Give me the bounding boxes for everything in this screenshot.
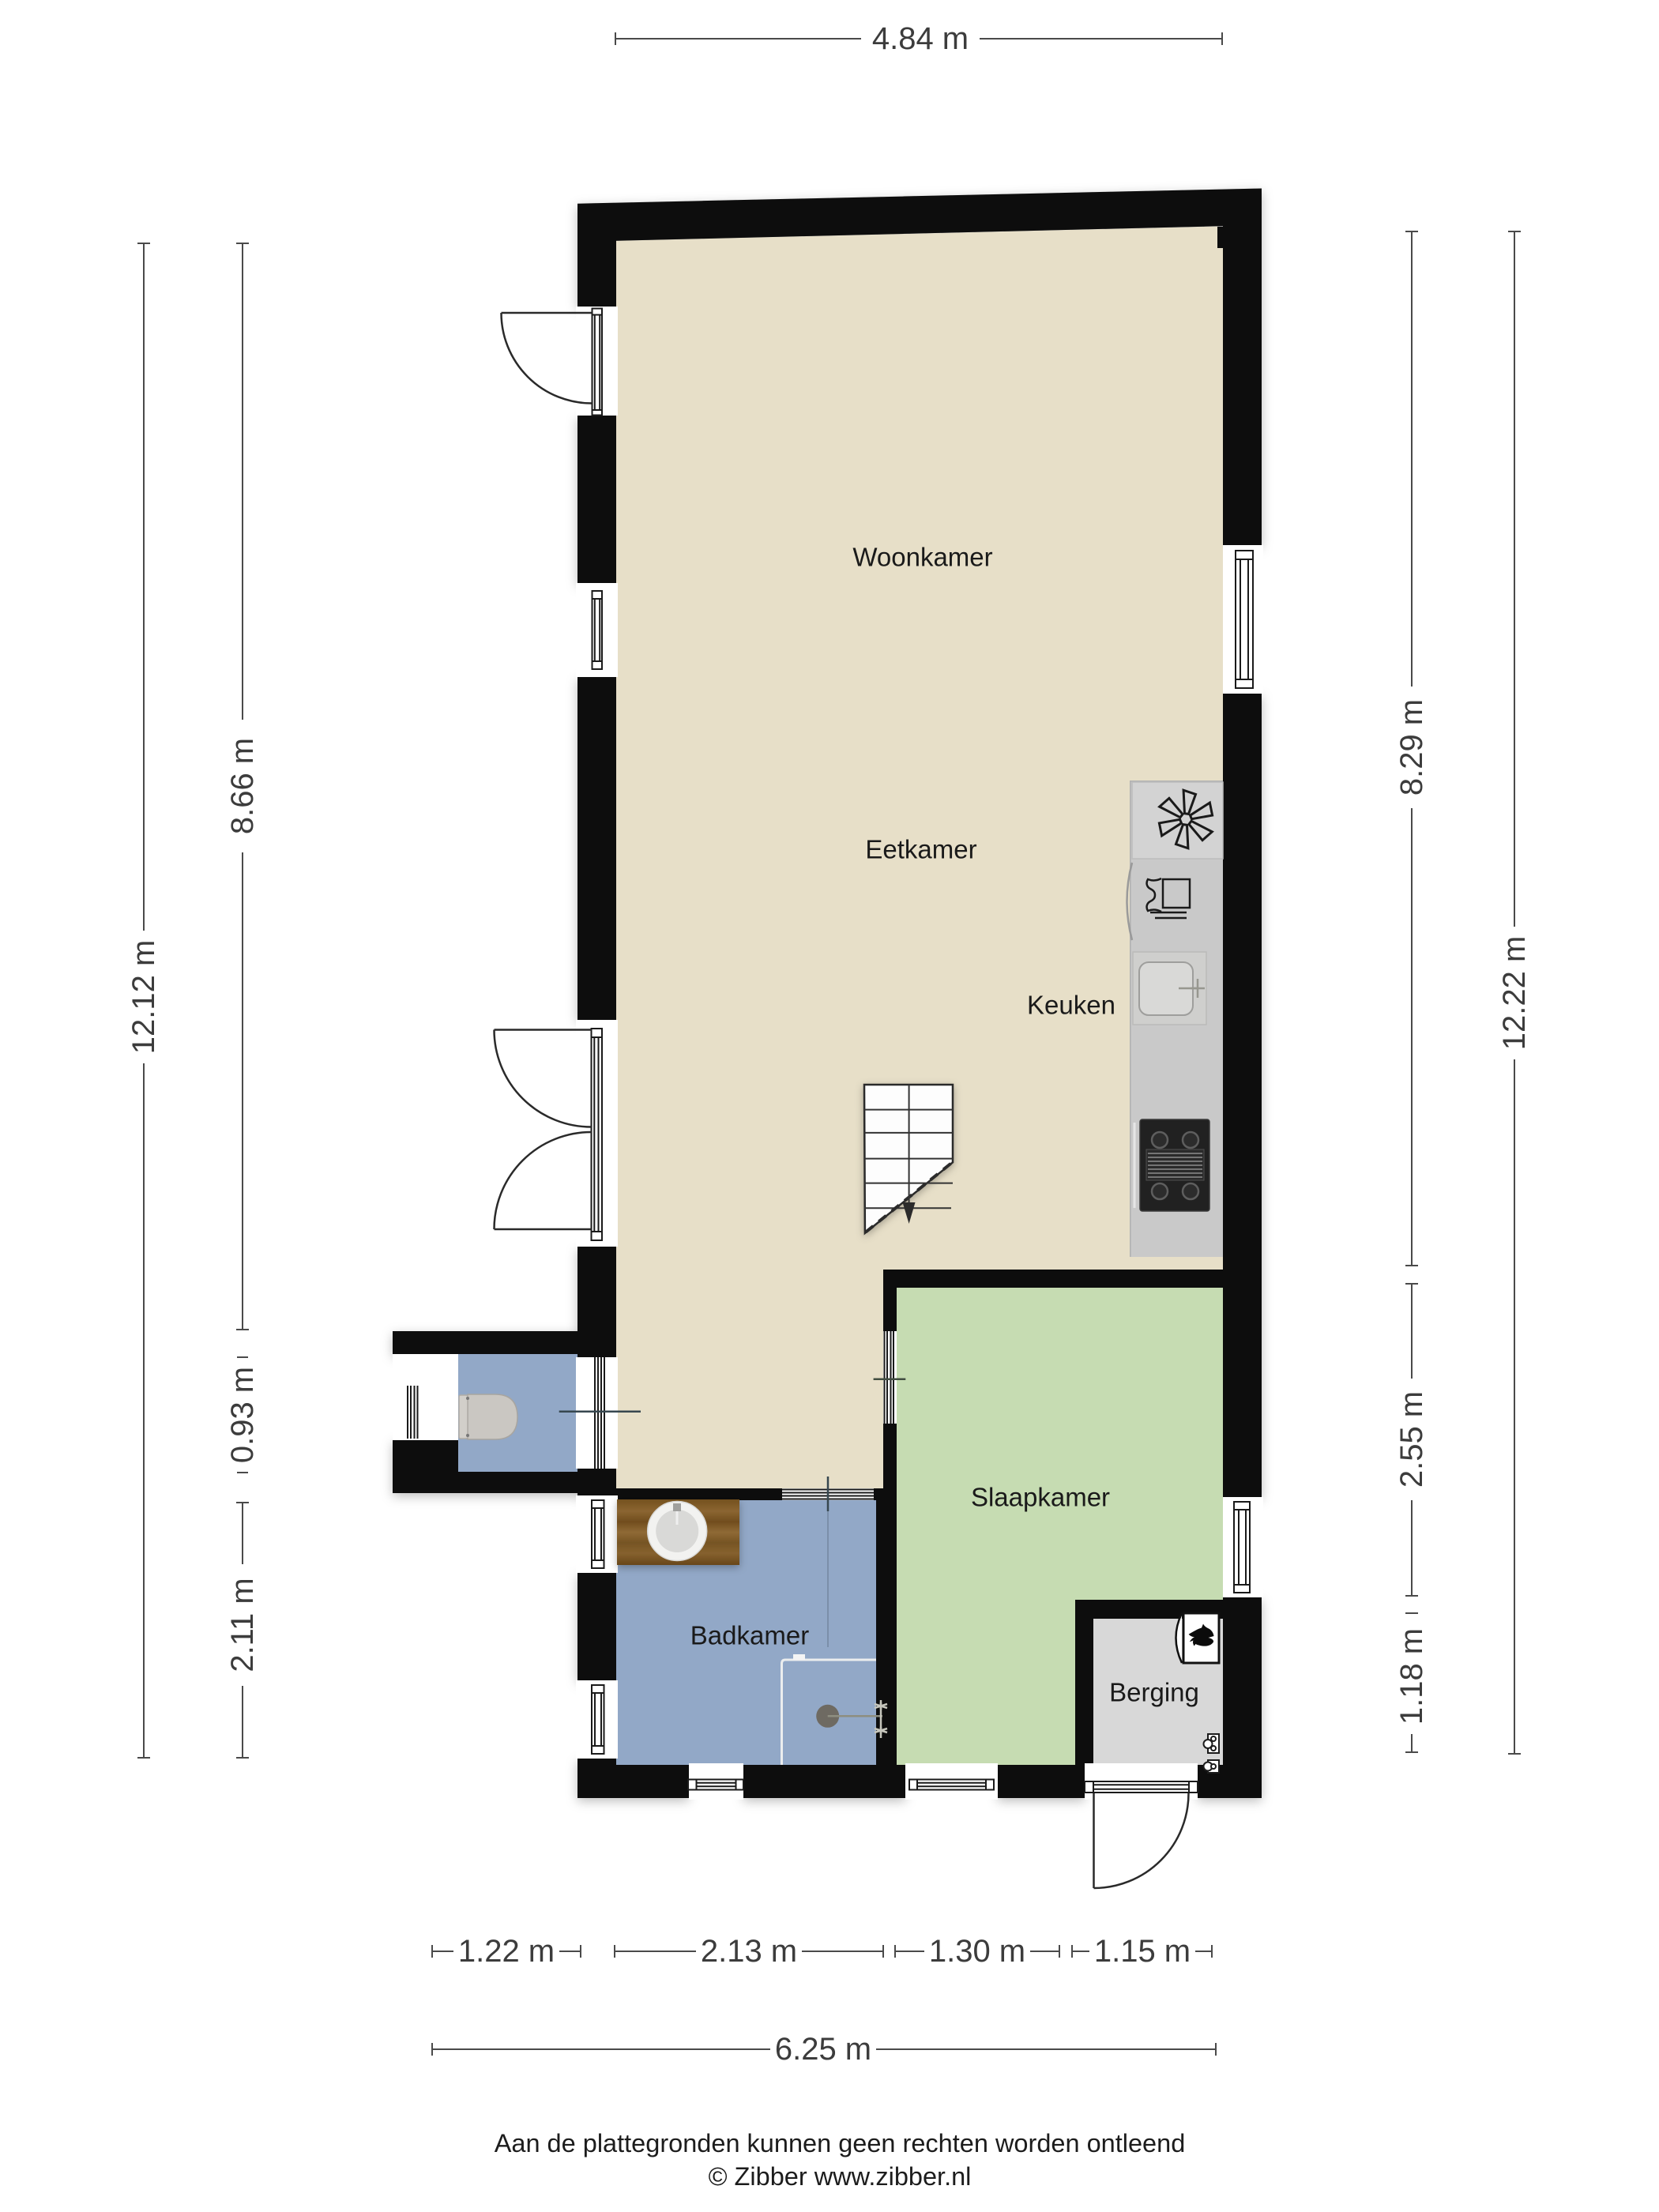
svg-text:2.11 m: 2.11 m	[225, 1578, 260, 1672]
svg-text:Eetkamer: Eetkamer	[865, 835, 976, 864]
svg-text:1.18 m: 1.18 m	[1394, 1628, 1429, 1725]
svg-text:Keuken: Keuken	[1027, 991, 1115, 1020]
svg-text:12.22 m: 12.22 m	[1497, 936, 1532, 1051]
svg-text:6.25 m: 6.25 m	[775, 2032, 871, 2067]
svg-text:Slaapkamer: Slaapkamer	[971, 1483, 1110, 1512]
svg-text:4.84 m: 4.84 m	[872, 21, 969, 56]
svg-text:Badkamer: Badkamer	[690, 1621, 809, 1650]
svg-text:Aan de plattegronden kunnen ge: Aan de plattegronden kunnen geen rechten…	[495, 2129, 1186, 2157]
svg-text:8.29 m: 8.29 m	[1394, 699, 1429, 796]
svg-text:2.13 m: 2.13 m	[701, 1934, 797, 1969]
svg-text:© Zibber www.zibber.nl: © Zibber www.zibber.nl	[709, 2162, 972, 2191]
svg-text:1.22 m: 1.22 m	[458, 1934, 555, 1969]
svg-text:Woonkamer: Woonkamer	[852, 543, 992, 572]
svg-text:8.66 m: 8.66 m	[225, 738, 260, 834]
svg-text:1.30 m: 1.30 m	[929, 1934, 1025, 1969]
svg-text:Berging: Berging	[1109, 1678, 1199, 1707]
svg-text:2.55 m: 2.55 m	[1394, 1391, 1429, 1488]
svg-text:1.15 m: 1.15 m	[1094, 1934, 1191, 1969]
svg-text:12.12 m: 12.12 m	[126, 940, 161, 1055]
svg-text:0.93 m: 0.93 m	[225, 1367, 260, 1463]
